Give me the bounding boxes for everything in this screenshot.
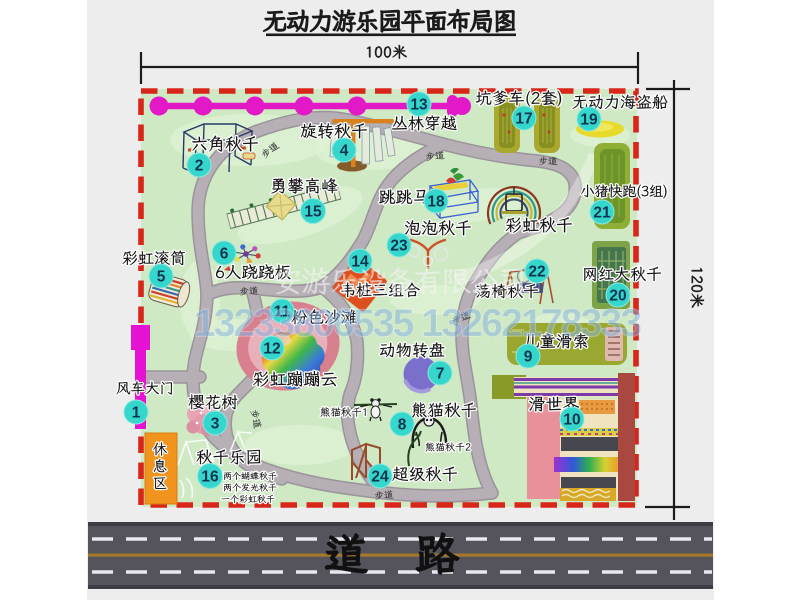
svg-text:13233806535 13262178333: 13233806535 13262178333 [194,302,642,345]
svg-text:22: 22 [528,264,545,281]
svg-text:8: 8 [398,417,407,434]
svg-text:2: 2 [195,158,204,175]
svg-text:18: 18 [427,194,445,211]
svg-text:1: 1 [132,405,141,422]
svg-text:21: 21 [593,205,611,222]
svg-text:4: 4 [340,143,349,160]
svg-text:17: 17 [515,111,532,128]
svg-text:10: 10 [563,412,580,429]
svg-text:5: 5 [157,269,166,286]
svg-text:23: 23 [390,238,408,255]
svg-text:24: 24 [371,469,389,486]
svg-text:16: 16 [201,469,219,486]
svg-text:19: 19 [580,112,598,129]
svg-text:15: 15 [304,204,322,221]
svg-text:9: 9 [524,349,533,366]
svg-text:3: 3 [211,416,220,433]
svg-text:6: 6 [220,246,229,263]
svg-text:14: 14 [351,254,369,271]
svg-text:7: 7 [436,366,445,383]
svg-text:13: 13 [410,97,428,114]
